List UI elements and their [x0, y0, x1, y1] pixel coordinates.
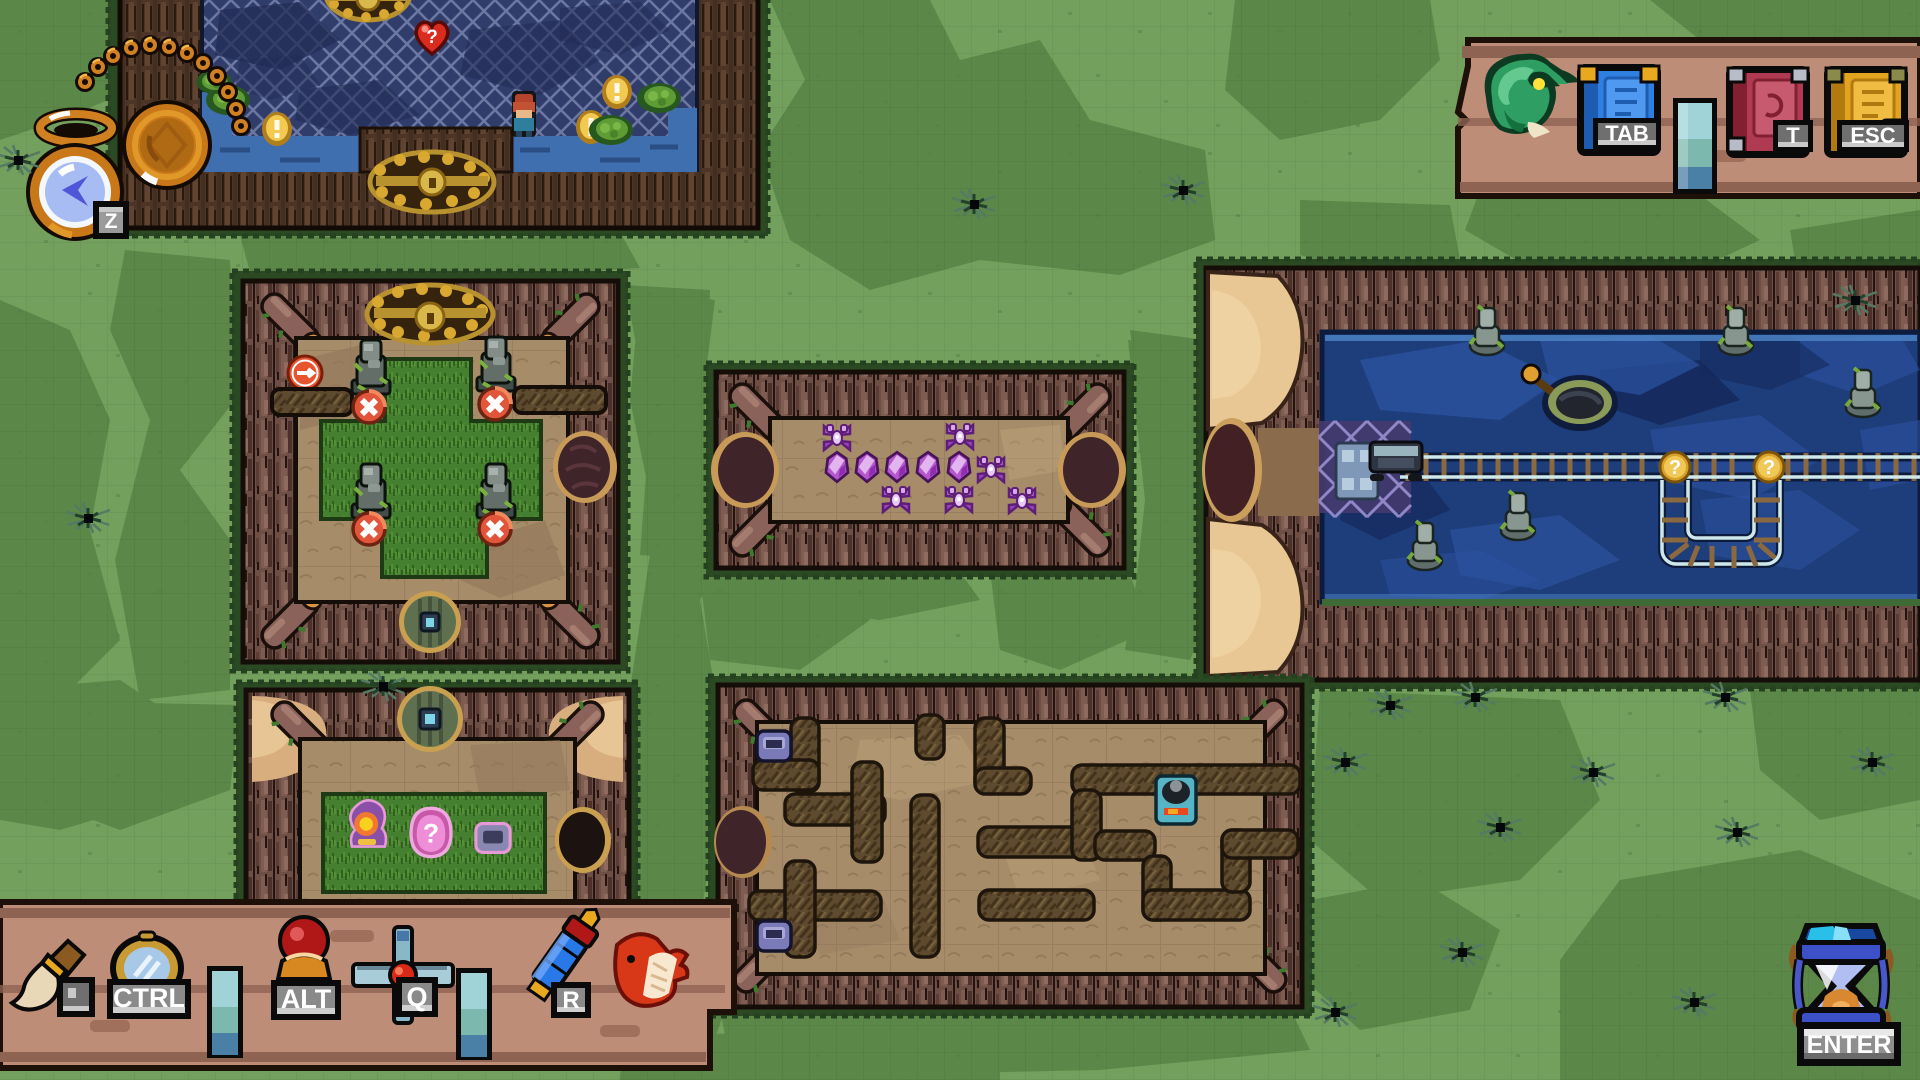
- svg-text:Z: Z: [105, 210, 118, 233]
- svg-text:?: ?: [423, 819, 439, 849]
- svg-text:?: ?: [1763, 457, 1775, 479]
- svg-text:ENTER: ENTER: [1807, 1031, 1892, 1059]
- svg-text:T: T: [1786, 123, 1800, 148]
- svg-text:R: R: [562, 987, 579, 1014]
- svg-text:TAB: TAB: [1605, 121, 1649, 146]
- svg-text:ESC: ESC: [1850, 123, 1895, 148]
- svg-text:?: ?: [1669, 457, 1681, 479]
- svg-text:?: ?: [426, 27, 438, 48]
- svg-text:Q: Q: [406, 982, 427, 1012]
- svg-text:ALT: ALT: [281, 984, 332, 1014]
- svg-text:CTRL: CTRL: [113, 983, 185, 1013]
